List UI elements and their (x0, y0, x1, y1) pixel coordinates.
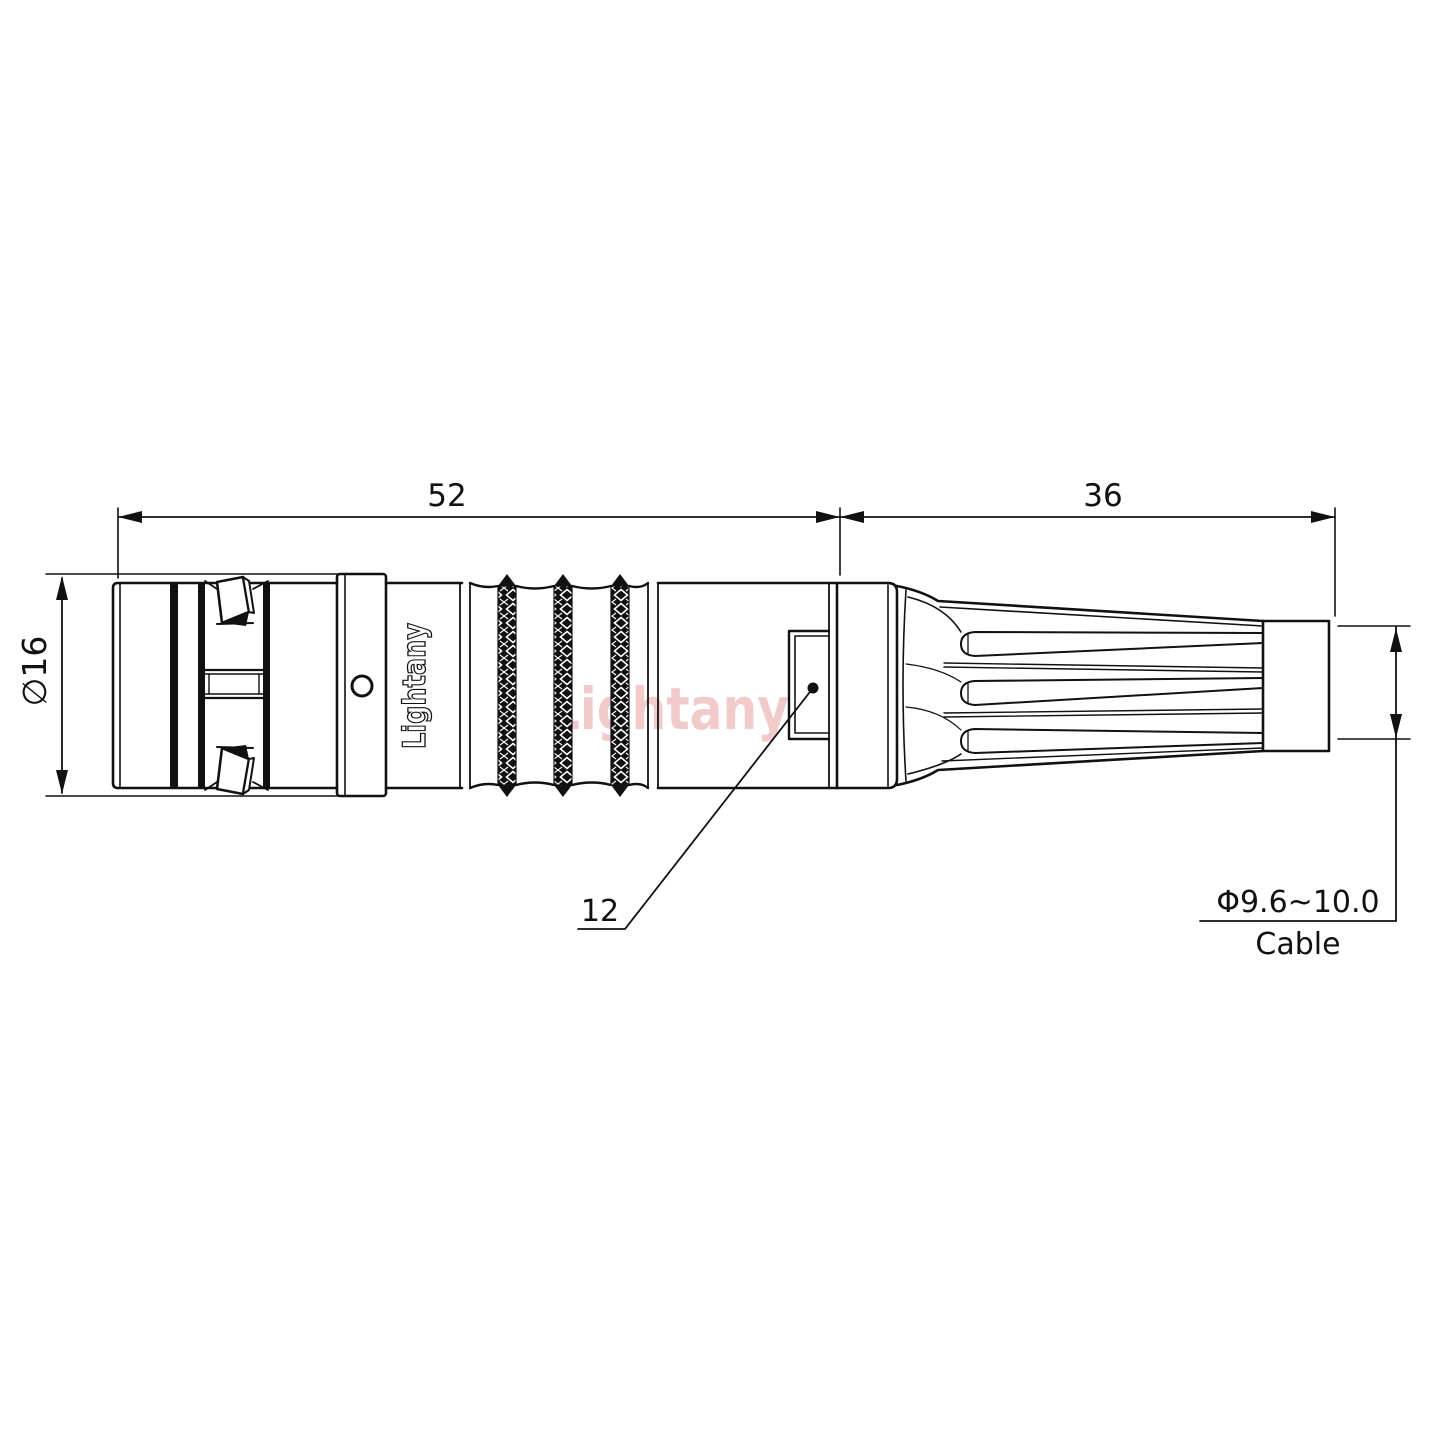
dim-body-length-label: 52 (427, 478, 466, 514)
knurl-section (460, 574, 658, 797)
strain-relief-fingers (897, 586, 1263, 785)
dim-relief-length-label: 36 (1083, 478, 1122, 514)
dimension-relief-length: 36 (840, 478, 1335, 616)
body-marking-section: Lightany (386, 583, 462, 788)
cable-diameter-label: Φ9.6~10.0 (1216, 885, 1379, 920)
body-marking-text: Lightany (397, 623, 433, 749)
nose-groove (170, 583, 178, 788)
dim-diameter-label: ∅16 (15, 636, 54, 707)
arrowhead-right-icon (1311, 511, 1335, 523)
locking-ring (337, 574, 386, 796)
watermark-text: Lightany (549, 675, 789, 743)
strain-relief-collar (838, 583, 897, 788)
cable-diameter-dimension: Φ9.6~10.0 Cable (1200, 626, 1410, 962)
relief-slot (961, 678, 1263, 705)
arrowhead-left-icon (118, 511, 142, 523)
dimension-body-length: 52 (118, 478, 840, 578)
arrowhead-down-icon (1390, 714, 1402, 738)
cable-bushing (1263, 621, 1329, 751)
leader-dot-icon (808, 683, 819, 694)
relief-slot (961, 632, 1263, 656)
latch-ear-top (205, 577, 268, 626)
knurl-band (554, 574, 572, 797)
knurl-band (498, 574, 516, 797)
leader-window-label: 12 (581, 894, 619, 929)
inspection-hole (352, 676, 372, 696)
connector-nose (113, 577, 337, 794)
latch-sleeve-front-wall (198, 583, 205, 788)
arrowhead-down-icon (56, 770, 68, 794)
arrowhead-right-icon (816, 511, 840, 523)
cable-word-label: Cable (1255, 927, 1340, 962)
latch-sleeve-rear-wall (263, 583, 270, 788)
knurl-band (611, 574, 629, 797)
technical-drawing-page: Lightany 52 36 ∅16 (0, 0, 1440, 1440)
latch-ear-bottom (205, 745, 268, 794)
connector-technical-drawing: Lightany 52 36 ∅16 (0, 0, 1440, 1440)
arrowhead-up-icon (56, 576, 68, 600)
latch-bridge (205, 670, 263, 698)
arrowhead-left-icon (840, 511, 864, 523)
arrowhead-up-icon (1390, 628, 1402, 652)
